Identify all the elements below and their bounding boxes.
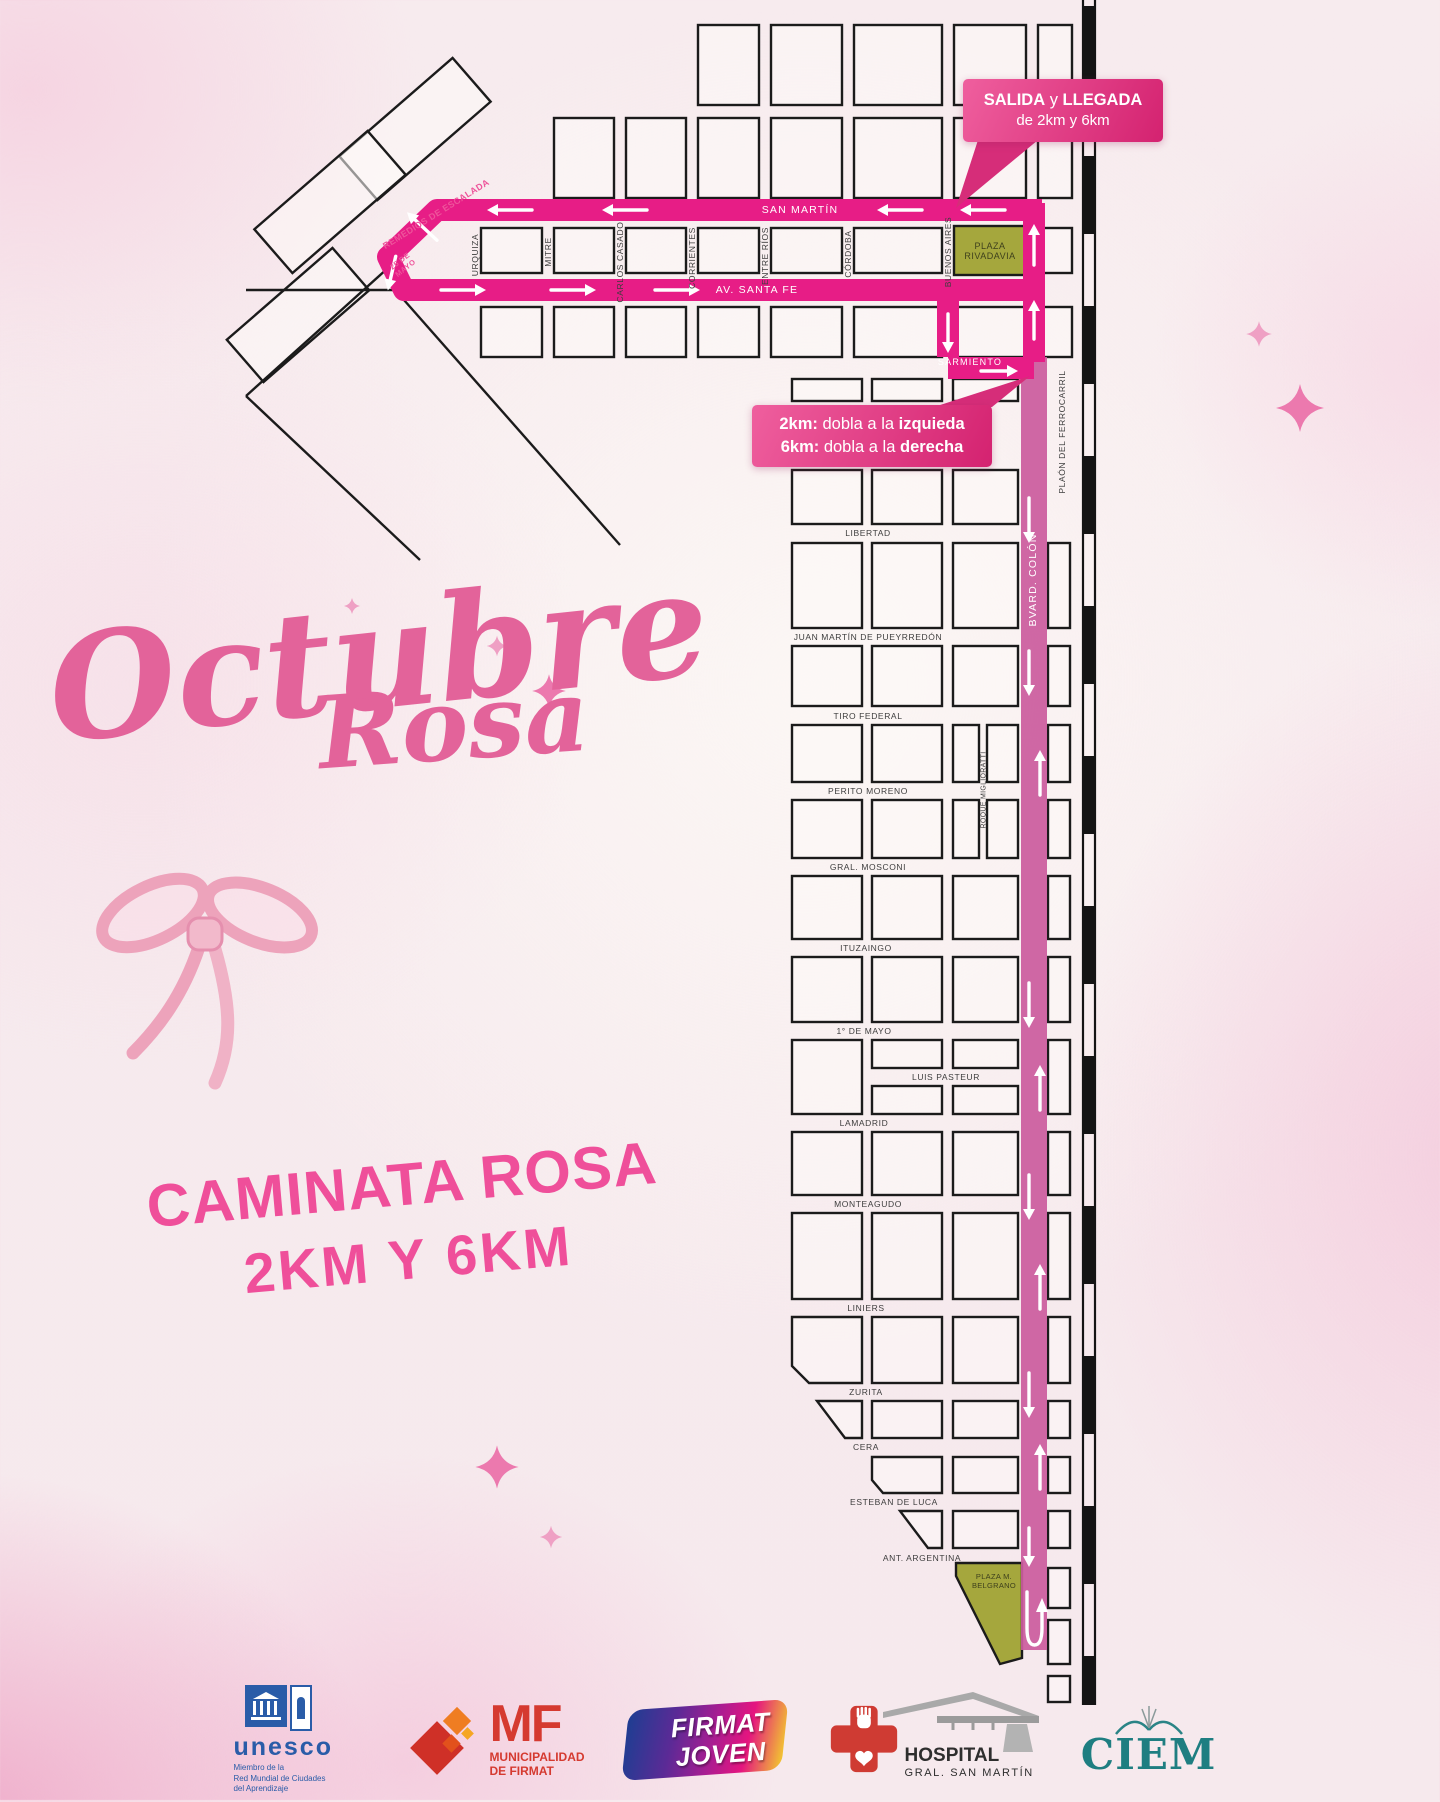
hospital-logo: HOSPITAL GRAL. SAN MARTÍN	[825, 1690, 1045, 1790]
railroad-track	[1083, 0, 1095, 1705]
firmat-joven-line: JOVEN	[674, 1737, 766, 1769]
ciem-wordmark: CIEM	[1081, 1734, 1217, 1776]
hospital-cross-icon	[825, 1700, 903, 1778]
mf-description: MUNICIPALIDAD DE FIRMAT	[489, 1750, 584, 1779]
callout-line: de 2km y 6km	[1016, 111, 1109, 131]
unesco-temple-icon	[245, 1685, 312, 1731]
callout-line: SALIDA y LLEGADA	[984, 90, 1143, 111]
poster-root: { "title": {"word1": "Octubre", "word2":…	[0, 0, 1440, 1800]
turn-instructions-callout: 2km: dobla a la izquieda 6km: dobla a la…	[752, 405, 992, 467]
callout-line: 6km: dobla a la derecha	[781, 436, 964, 459]
city-blocks-north	[481, 25, 1072, 357]
hospital-name: HOSPITAL	[905, 1746, 1034, 1765]
mf-diamonds-icon	[415, 1703, 481, 1777]
hospital-subname: GRAL. SAN MARTÍN	[905, 1767, 1034, 1779]
plaza-rivadavia	[954, 226, 1026, 275]
callout-line: 2km: dobla a la izquieda	[779, 413, 964, 436]
plaza-belgrano	[956, 1563, 1022, 1664]
unesco-logo: unesco Miembro de la Red Mundial de Ciud…	[231, 1685, 371, 1794]
unesco-wordmark: unesco	[233, 1733, 333, 1762]
city-map	[0, 0, 1440, 1800]
mf-initials: MF	[489, 1702, 584, 1746]
start-finish-callout: SALIDA y LLEGADA de 2km y 6km	[963, 79, 1163, 142]
bow-illustration	[92, 865, 321, 1083]
unesco-description: Miembro de la Red Mundial de Ciudades de…	[233, 1763, 325, 1794]
municipalidad-firmat-logo: MF MUNICIPALIDAD DE FIRMAT	[415, 1702, 584, 1779]
firmat-joven-logo: FIRMAT JOVEN	[626, 1696, 783, 1784]
ciem-logo: CIEM	[1089, 1704, 1209, 1776]
sponsor-logos-bar: unesco Miembro de la Red Mundial de Ciud…	[0, 1678, 1440, 1802]
